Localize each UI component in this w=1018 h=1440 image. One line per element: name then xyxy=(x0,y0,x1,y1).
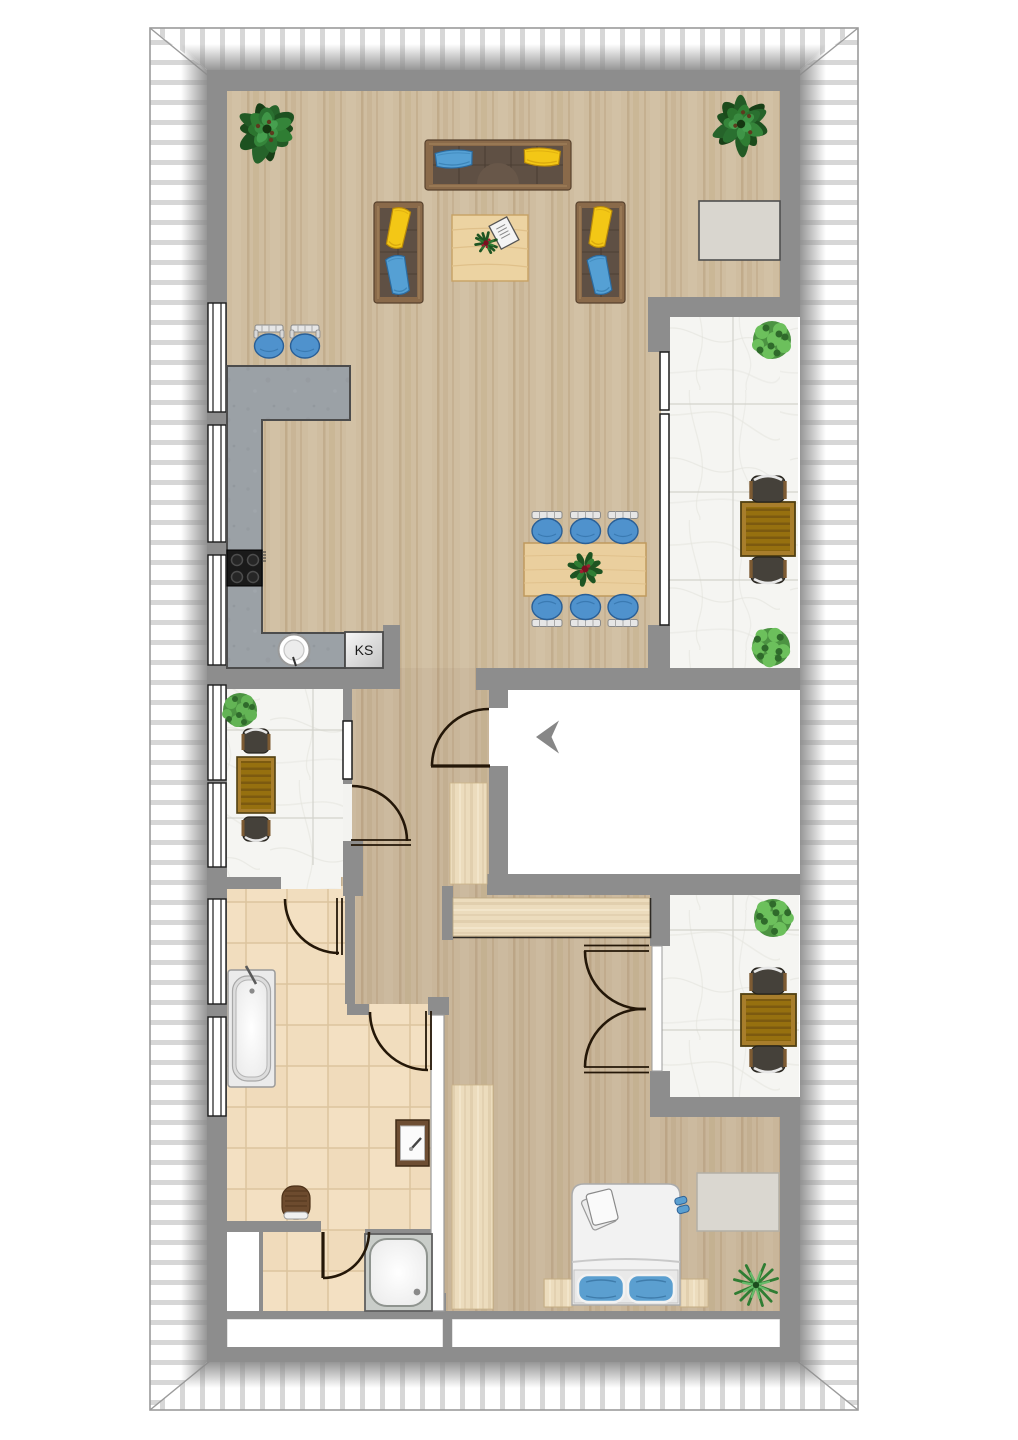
svg-text:KS: KS xyxy=(355,642,374,658)
